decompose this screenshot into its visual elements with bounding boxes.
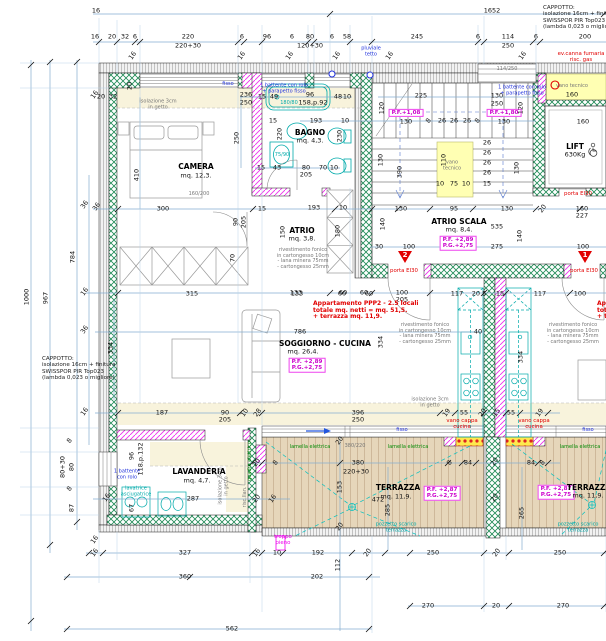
size-note: vano tecnico	[556, 84, 588, 90]
dimension-label: 96	[263, 33, 271, 40]
dimension-label: 10	[462, 180, 470, 187]
dimension-label: 245	[411, 33, 423, 40]
dimension-label: 80+30	[59, 456, 66, 478]
dimension-label: 16	[518, 51, 529, 62]
dimension-label: 20	[478, 408, 489, 419]
dimension-label: 250	[554, 549, 566, 556]
size-note: 114/250	[497, 67, 518, 73]
window-note: pluviale tetto	[361, 46, 381, 57]
dimension-label: 26	[483, 169, 491, 176]
dimension-label: 95	[450, 205, 458, 212]
dimension-label: 26	[438, 117, 446, 124]
level-badge: P.F.+1,08	[389, 109, 424, 117]
dimension-label: 8	[474, 117, 482, 125]
dimension-label: 20	[108, 33, 116, 40]
dimension-label: 250	[491, 100, 503, 107]
red-note: porta EI30	[390, 268, 418, 274]
fixture-note: 75/90	[275, 153, 289, 159]
dimension-label: 360	[179, 573, 191, 580]
dimension-label: 80	[306, 33, 314, 40]
dimension-label: 16	[285, 51, 296, 62]
dimension-label: mq. 11,9.	[380, 493, 411, 500]
red-note: vano cappa cucina	[518, 418, 549, 430]
dimension-label: mq. 8,4.	[446, 226, 473, 233]
dimension-label: 40	[474, 328, 482, 335]
level-badge: P.F. +2,87 P.G.+2,75	[424, 486, 461, 501]
room-label: CAMERA	[178, 163, 213, 171]
dimension-label: 20	[492, 602, 500, 609]
dimension-label: 10	[339, 204, 347, 211]
dimension-label: 6	[290, 33, 294, 40]
dimension-label: 20	[492, 548, 503, 559]
red-note: porta EI30	[570, 268, 598, 274]
dimension-label: 250	[240, 99, 252, 106]
dimension-label: 36	[80, 200, 91, 211]
dimension-label: 786	[294, 328, 306, 335]
dimension-label: 100	[577, 243, 589, 250]
size-note: 380/220	[345, 444, 366, 450]
dimension-label: mq. 12,3.	[180, 172, 211, 179]
dimension-label: 1000	[23, 289, 30, 306]
dimension-label: 15	[258, 205, 266, 212]
dimension-label: 187	[156, 409, 168, 416]
dimension-label: 84	[464, 459, 472, 466]
dimension-label: 15	[492, 408, 503, 419]
dimension-label: 130	[400, 118, 412, 125]
dimension-label: 220	[182, 33, 194, 40]
dimension-label: 16	[332, 51, 343, 62]
dimension-label: 380	[352, 459, 364, 466]
dimension-label: 8	[66, 485, 74, 493]
dimension-label: 192	[312, 549, 324, 556]
apartment-note: Apa tota + te	[597, 301, 606, 321]
dimension-label: 334	[517, 351, 524, 363]
cappotto-note: CAPPOTTO: isolazione 16cm + finitura SWI…	[543, 5, 606, 30]
dimension-label: 20	[252, 494, 263, 505]
dimension-label: 390	[396, 166, 403, 178]
dimension-label: 20	[126, 82, 133, 90]
dimension-label: 16	[102, 493, 113, 504]
dimension-label: 15	[258, 93, 266, 100]
room-label: TERRAZZA	[376, 484, 420, 492]
floor-plan-sheet: 165216162032622069668065824561146200220+…	[0, 0, 606, 641]
door-number: 1	[583, 252, 588, 260]
dimension-label: 36	[80, 325, 91, 336]
size-note: rivestimento fonico in cartongesso 10cm …	[277, 248, 329, 270]
dimension-label: 16	[80, 407, 91, 418]
dimension-label: 19	[535, 408, 546, 419]
dimension-label: mq. 4,7.	[184, 477, 211, 484]
size-note: risc.llan.	[243, 487, 249, 508]
electric-note: lamella elettrica	[388, 445, 429, 451]
dimension-label: 67	[128, 504, 135, 512]
window-note: 1 battente con rolo + parapetto fisso	[260, 83, 308, 94]
dimension-label: 6	[534, 33, 538, 40]
dimension-label: 48	[334, 93, 342, 100]
dimension-label: 32	[109, 93, 117, 100]
dimension-label: 26	[463, 117, 471, 124]
cappotto-note: CAPPOTTO: isolazione 16cm + finitura SWI…	[42, 356, 116, 381]
dimension-label: 16	[90, 548, 101, 559]
dimension-label: 1652	[484, 7, 501, 14]
dimension-label: 10	[330, 164, 338, 171]
dimension-label: 19	[442, 408, 453, 419]
dimension-label: 100	[403, 243, 415, 250]
dimension-label: 96	[128, 452, 135, 460]
dimension-label: mq. 26,4.	[287, 348, 318, 355]
dimension-label: 130	[377, 154, 384, 166]
dimension-label: 26	[483, 159, 491, 166]
dimension-label: 20	[335, 522, 346, 533]
dimension-label: 130	[498, 118, 510, 125]
level-badge: P.F. +2,89 P.G.+2,75	[440, 236, 477, 251]
dimension-label: mq. 3,8.	[289, 235, 316, 242]
dimension-label: 10	[343, 93, 351, 100]
electric-note: lamella elettrica	[560, 445, 601, 451]
dimension-label: 6	[476, 33, 480, 40]
dimension-label: 205	[219, 416, 231, 423]
dimension-label: 250	[502, 42, 514, 49]
dimension-label: 75	[450, 180, 458, 187]
dimension-label: 16	[268, 494, 279, 505]
dimension-label: 130	[513, 162, 520, 174]
dimension-label: 58	[343, 33, 351, 40]
dimension-label: 120+30	[297, 42, 323, 49]
size-note: isolazione 3cm in getto	[139, 99, 176, 110]
dimension-label: 16	[128, 51, 139, 62]
dimension-label: 967	[42, 292, 49, 304]
dimension-label: 15	[269, 117, 277, 124]
dimension-label: 300	[157, 205, 169, 212]
dimension-label: 26	[450, 117, 458, 124]
dimension-label: 160	[577, 118, 589, 125]
dimension-label: 270	[557, 602, 569, 609]
dimension-label: 16	[91, 33, 99, 40]
dimension-label: 26	[483, 149, 491, 156]
dimension-label: 562	[226, 625, 238, 632]
dimension-label: 20	[490, 493, 501, 504]
dimension-label: 100	[574, 290, 586, 297]
dimension-label: 250	[427, 549, 439, 556]
dimension-label: 117	[451, 290, 463, 297]
dimension-label: mq. 4,3.	[297, 137, 324, 144]
annotation-layer: 165216162032622069668065824561146200220+…	[0, 0, 606, 641]
dimension-label: 220+30	[343, 468, 369, 475]
dimension-label: 287	[187, 495, 199, 502]
dimension-label: 16	[80, 287, 91, 298]
dimension-label: 10	[273, 549, 281, 556]
dimension-label: 334	[377, 336, 384, 348]
dimension-label: 227	[576, 212, 588, 219]
overflow-note: troppo pieno	[274, 534, 292, 546]
dimension-label: 30	[375, 243, 383, 250]
apartment-note: Appartamento PPP2 - 2.5 locali totale mq…	[313, 301, 418, 321]
dimension-label: 250	[352, 416, 364, 423]
dimension-label: 20	[538, 204, 549, 215]
dimension-label: 16	[237, 51, 248, 62]
dimension-label: 16	[90, 535, 101, 546]
dimension-label: 230	[336, 130, 343, 142]
dimension-label: 112	[334, 559, 341, 571]
dimension-label: 87	[68, 504, 75, 512]
dimension-label: 70	[229, 254, 236, 262]
dimension-label: 133	[291, 290, 303, 297]
dimension-label: 220	[276, 128, 283, 140]
window-note: 1 battente con rolo + parapetto fisso	[498, 85, 546, 96]
dimension-label: 8	[425, 117, 433, 125]
electric-note: lamella elettrica	[290, 445, 331, 451]
dimension-label: 6	[330, 33, 334, 40]
dimension-label: 84	[527, 459, 535, 466]
dimension-label: 160	[566, 91, 578, 98]
dimension-label: 114	[502, 33, 514, 40]
dimension-label: 10	[436, 180, 444, 187]
dimension-label: 60	[365, 290, 373, 297]
dimension-label: 784	[69, 251, 76, 263]
dimension-label: 26	[483, 139, 491, 146]
dimension-label: 16	[252, 548, 263, 559]
size-note: rivestimento fonico in cartongesso 10cm …	[399, 323, 451, 345]
dimension-label: 28	[253, 408, 264, 419]
dimension-label: 8	[66, 437, 74, 445]
dimension-label: 15	[257, 164, 265, 171]
dimension-label: 630Kg	[565, 151, 586, 158]
dimension-label: 36	[92, 202, 103, 213]
dimension-label: 205	[240, 216, 247, 228]
red-note: ev.canna fumaria risc. gas	[558, 51, 605, 63]
dimension-label: 10	[341, 117, 349, 124]
dimension-label: 8	[272, 459, 280, 467]
dimension-label: 140	[516, 230, 523, 242]
fixture-note: pozzetto scarico terrazza	[558, 522, 599, 533]
dimension-label: 80	[68, 463, 75, 471]
dimension-label: 130	[501, 205, 513, 212]
dimension-label: 55	[507, 409, 515, 416]
dimension-label: 275	[491, 243, 503, 250]
dimension-label: 60	[338, 290, 346, 297]
dimension-label: 20 5	[472, 290, 486, 297]
dimension-label: 49	[270, 93, 278, 100]
dimension-label: 16	[92, 7, 100, 14]
level-badge: P.F. +2,89 P.G.+2,75	[289, 358, 326, 373]
dimension-label: 20	[363, 548, 374, 559]
dimension-label: 20	[97, 93, 105, 100]
dimension-label: 117	[534, 290, 546, 297]
dimension-label: 153	[336, 481, 343, 493]
fixture-note: 180/80	[280, 101, 298, 107]
dimension-label: 158,p.92	[299, 99, 328, 106]
dimension-label: 193	[310, 117, 322, 124]
dimension-label: 16	[385, 51, 396, 62]
window-note: fisso	[222, 82, 233, 88]
dimension-label: 150	[279, 226, 286, 238]
dimension-label: 265	[518, 507, 525, 519]
window-note: fisso	[582, 428, 593, 434]
dimension-label: 535	[491, 223, 503, 230]
dimension-label: 130	[395, 205, 407, 212]
dimension-label: 270	[422, 602, 434, 609]
dimension-label: 327	[179, 549, 191, 556]
red-note: porta EI30	[564, 191, 592, 197]
dimension-label: 250	[233, 132, 240, 144]
dimension-label: 15	[496, 290, 504, 297]
window-note: 1 battente con rolo	[114, 469, 140, 480]
dimension-label: 140	[379, 218, 386, 230]
dimension-label: 285	[384, 504, 391, 516]
dimension-label: 410	[133, 169, 140, 181]
dimension-label: 120	[378, 102, 385, 114]
dimension-label: 315	[186, 290, 198, 297]
window-note: fisso	[396, 428, 407, 434]
red-note: vano cappa cucina	[446, 418, 477, 430]
dimension-label: 10	[240, 408, 251, 419]
dimension-label: 8	[446, 459, 454, 467]
dimension-label: 20	[490, 457, 501, 468]
dimension-label: 205	[300, 171, 312, 178]
fixture-note: lavatrice asciugatrice	[121, 486, 151, 497]
dimension-label: 334	[107, 342, 114, 354]
dimension-label: 43	[273, 164, 281, 171]
dimension-label: 6	[133, 33, 137, 40]
dimension-label: mq. 11,9.	[572, 492, 603, 499]
dimension-label: 225	[415, 92, 427, 99]
dimension-label: 180	[334, 225, 341, 237]
dimension-label: 55	[460, 409, 468, 416]
dimension-label: 70	[319, 164, 327, 171]
dimension-label: 193	[308, 204, 320, 211]
size-note: isolazione 3cm in getto	[218, 467, 229, 504]
dimension-label: 202	[311, 573, 323, 580]
dimension-label: 220+30	[175, 42, 201, 49]
dimension-label: 110	[440, 154, 447, 166]
door-number: 2	[403, 252, 408, 260]
size-note: isolazione 3cm in getto	[411, 397, 448, 408]
dimension-label: 120	[517, 102, 524, 114]
dimension-label: 6	[240, 33, 244, 40]
dimension-label: 32	[121, 33, 129, 40]
size-note: 160/200	[189, 192, 210, 198]
dimension-label: 200	[579, 33, 591, 40]
dimension-label: 8	[539, 459, 547, 467]
dimension-label: 15	[483, 180, 491, 187]
size-note: rivestimento fonico in cartongesso 10cm …	[547, 323, 599, 345]
fixture-note: pozzetto scarico terrazza	[376, 522, 417, 533]
